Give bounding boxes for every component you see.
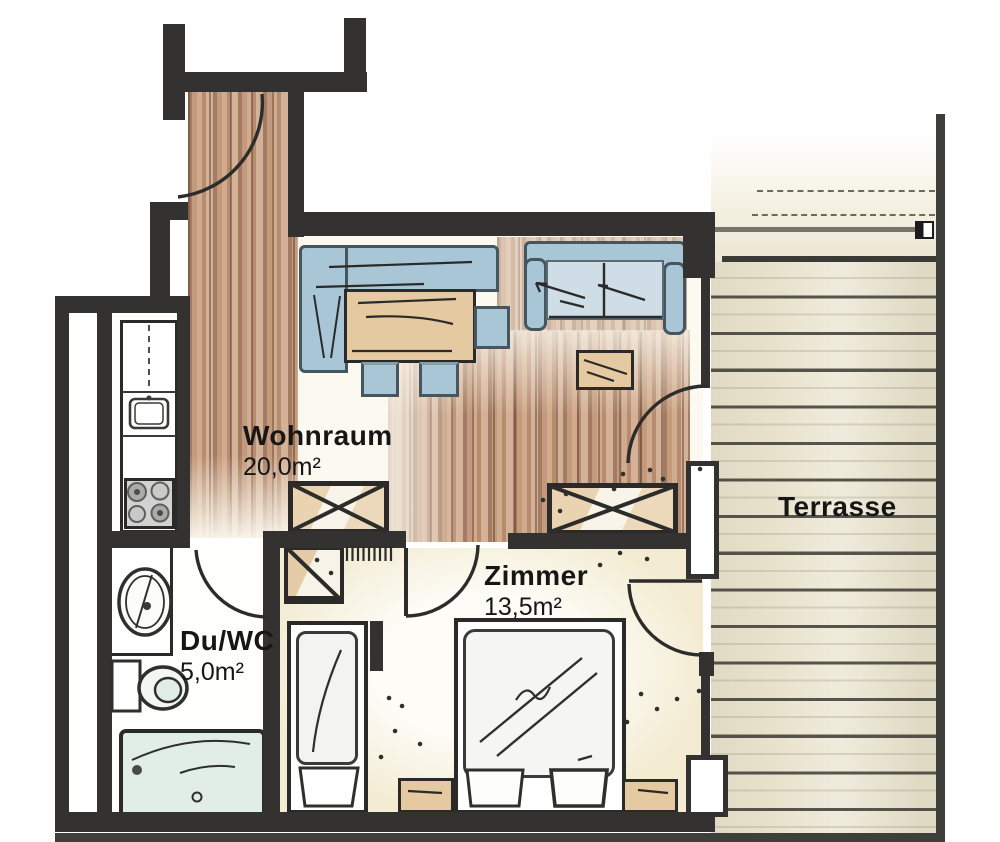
- room-name: Terrasse: [778, 492, 897, 521]
- room-label-terrasse: Terrasse: [778, 492, 897, 521]
- wall-entry-stub-right: [344, 18, 366, 92]
- room-label-wohnraum: Wohnraum 20,0m²: [243, 421, 393, 481]
- wall-bath-top: [108, 531, 190, 548]
- wall-bottom: [55, 812, 715, 832]
- wall-living-top: [298, 212, 690, 236]
- wall-east-lower: [701, 672, 710, 760]
- wardrobe-x-right: [547, 483, 678, 535]
- wall-left-outer: [55, 310, 69, 832]
- terrace-plank-dashed-1: [757, 190, 935, 192]
- wall-kitchen-front: [177, 313, 190, 545]
- window-block-upper: [686, 461, 719, 579]
- stove: [124, 478, 175, 529]
- window-block-lower: [686, 755, 728, 817]
- loveseat-seat: [546, 260, 664, 320]
- floor-plan: Wohnraum 20,0m² Zimmer 13,5m² Du/WC 5,0m…: [0, 0, 1000, 842]
- room-label-zimmer: Zimmer 13,5m²: [484, 561, 588, 621]
- nightstand-left: [398, 778, 454, 813]
- wall-terrace-right: [936, 114, 945, 842]
- dining-chair-right: [474, 306, 510, 349]
- single-bed-duvet: [296, 631, 358, 765]
- corner-bench-left: [299, 245, 348, 373]
- terrace-upper: [711, 105, 945, 262]
- terrace-plank-dashed-2: [752, 214, 935, 216]
- wall-entry-top: [163, 72, 367, 92]
- room-name: Du/WC: [180, 626, 274, 655]
- terrace-plank-line-1: [712, 227, 933, 232]
- bathroom-vanity: [112, 541, 173, 656]
- wall-left-inner: [97, 313, 112, 813]
- shower-tray: [119, 729, 266, 819]
- room-area: 20,0m²: [243, 454, 393, 480]
- room-name: Zimmer: [484, 561, 588, 590]
- room-name: Wohnraum: [243, 421, 393, 450]
- wall-left-horizontal: [55, 296, 190, 313]
- terrace-deck: [711, 262, 945, 842]
- room-area: 13,5m²: [484, 594, 588, 620]
- wall-nib-radiator: [370, 621, 383, 671]
- stool-1: [361, 362, 399, 397]
- shaft-box: [284, 546, 344, 604]
- wall-hall-south-1: [276, 531, 406, 548]
- wardrobe-x-left: [288, 481, 389, 534]
- stool-2: [419, 362, 459, 397]
- nightstand-right: [622, 779, 678, 813]
- room-area: 5,0m²: [180, 659, 274, 685]
- wall-ne-corner: [683, 212, 715, 278]
- wall-hall-south-2: [508, 533, 688, 549]
- room-label-du-wc: Du/WC 5,0m²: [180, 626, 274, 686]
- terrace-plank-line-2: [722, 256, 940, 262]
- terrace-symbol-icon: [915, 221, 934, 239]
- double-bed-duvet: [463, 629, 615, 778]
- dining-table: [344, 289, 476, 363]
- loveseat-arm-left: [524, 258, 547, 331]
- wall-bottom-outer: [55, 833, 945, 842]
- wall-east-upper: [701, 274, 710, 388]
- side-table: [576, 350, 634, 390]
